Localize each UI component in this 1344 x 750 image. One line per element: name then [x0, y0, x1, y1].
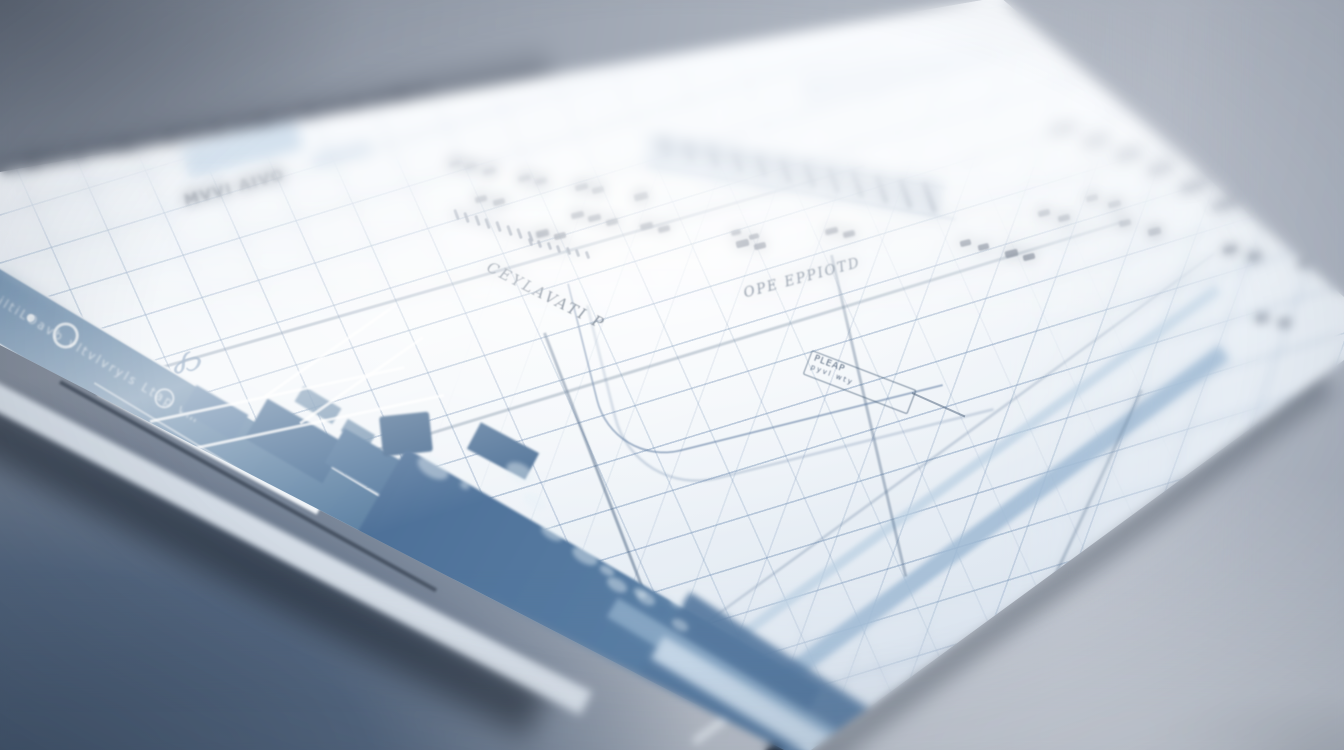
torn-edge-mark: [209, 123, 225, 136]
torn-edge-mark: [278, 112, 293, 122]
torn-edge-mark: [347, 97, 363, 110]
torn-edge-mark: [389, 88, 412, 101]
torn-edge-mark: [113, 140, 136, 153]
torn-edge-mark: [45, 154, 68, 164]
torn-edge-mark: [161, 131, 180, 144]
torn-edge-mark: [231, 120, 250, 130]
torn-edge-mark: [299, 106, 318, 119]
torn-edge-mark: [2, 163, 17, 173]
torn-edge-mark: [140, 137, 155, 147]
torn-edge-layer: [0, 0, 1344, 750]
torn-edge-mark: [321, 103, 344, 113]
torn-edge-mark: [251, 114, 274, 127]
photo-scene: MVVI AIVO CEYLAVATI P OPE EPPIOTD PLEAP …: [0, 0, 1344, 750]
torn-edge-mark: [71, 149, 87, 162]
torn-edge-mark: [369, 94, 388, 104]
torn-edge-mark: [23, 157, 42, 170]
torn-edge-mark: [183, 129, 206, 139]
torn-edge-mark: [416, 86, 431, 96]
torn-edge-mark: [93, 146, 112, 156]
